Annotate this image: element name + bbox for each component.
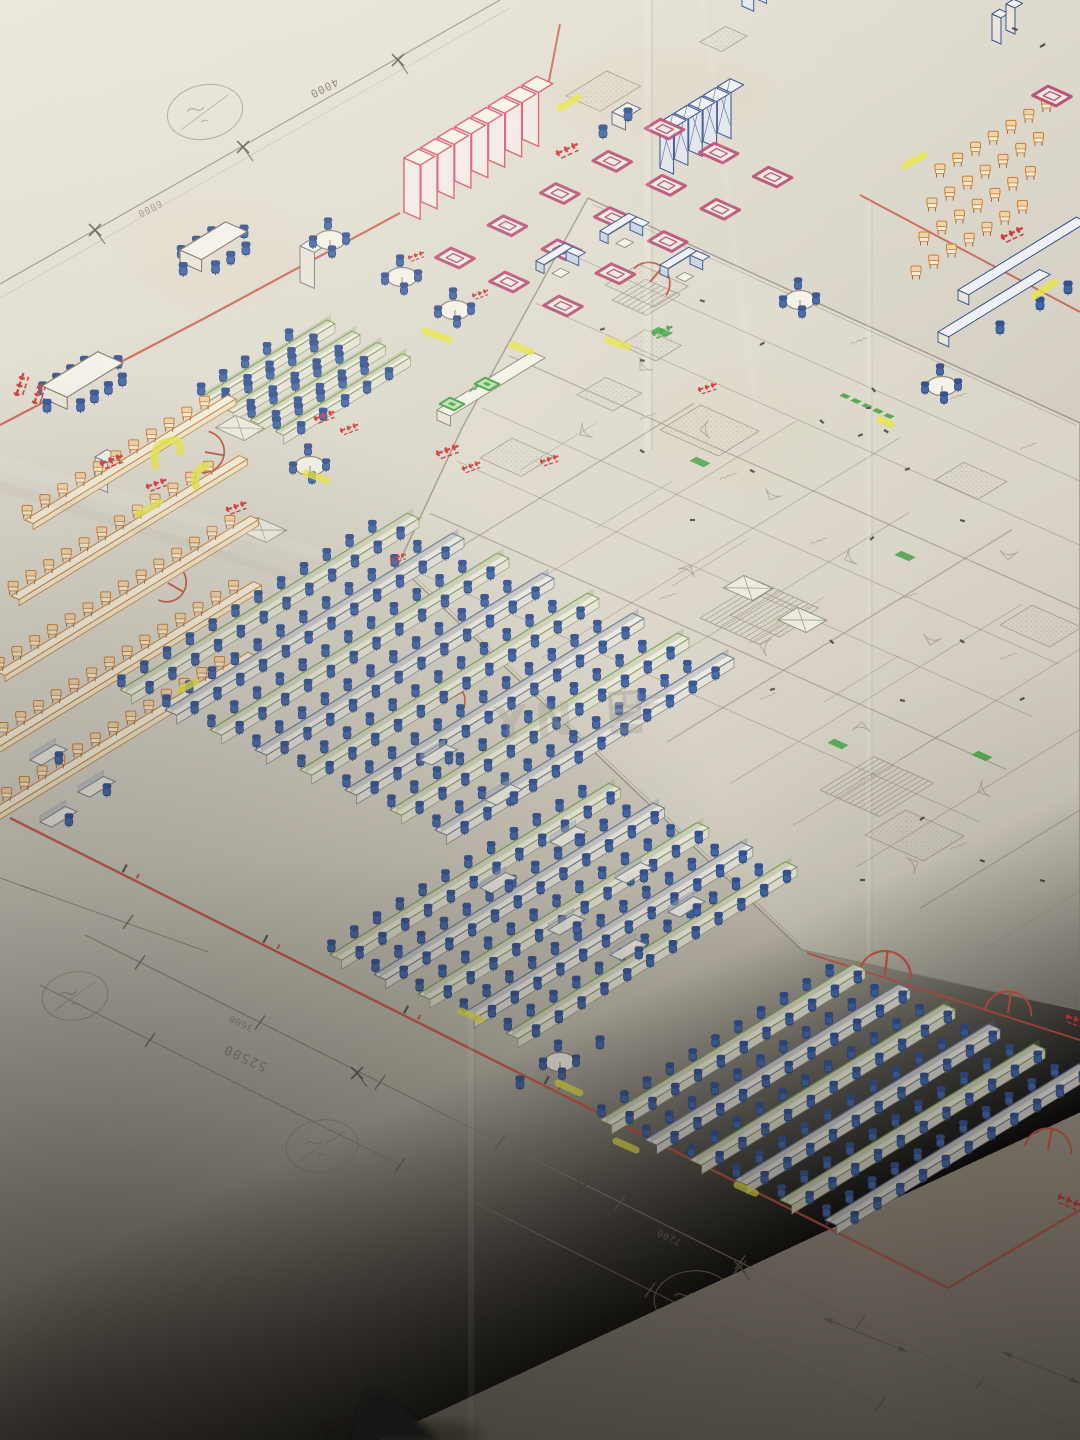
isometric-office-floorplan-drawing: 4000 6000 52500 3600 7200 YN [0, 0, 1080, 1440]
photo-highlight [0, 0, 1080, 1440]
floor-plan-photo: 4000 6000 52500 3600 7200 YN [0, 0, 1080, 1440]
